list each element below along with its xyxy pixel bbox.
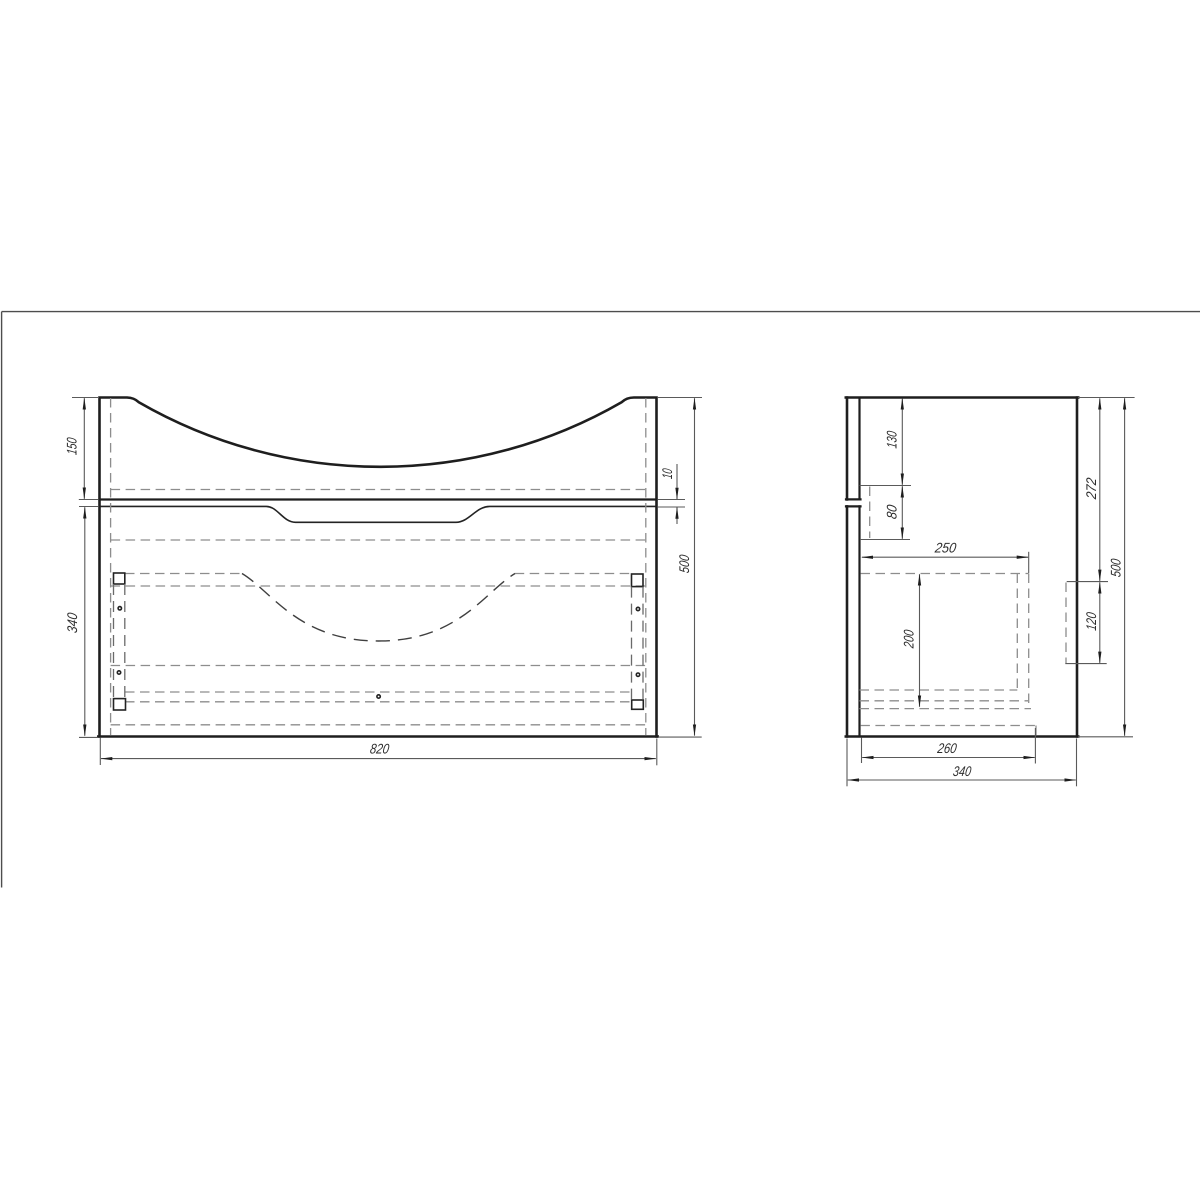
svg-text:820: 820 [369, 741, 390, 757]
svg-text:10: 10 [659, 467, 675, 479]
svg-text:340: 340 [64, 612, 80, 634]
svg-text:272: 272 [1083, 477, 1099, 501]
svg-text:150: 150 [64, 436, 80, 455]
svg-text:500: 500 [676, 554, 692, 574]
svg-text:130: 130 [884, 430, 900, 449]
svg-text:340: 340 [952, 763, 972, 779]
svg-text:250: 250 [933, 540, 957, 556]
svg-text:200: 200 [901, 629, 917, 650]
svg-text:260: 260 [936, 740, 958, 756]
svg-text:80: 80 [884, 504, 900, 520]
svg-text:120: 120 [1083, 611, 1099, 631]
svg-text:500: 500 [1108, 558, 1124, 578]
